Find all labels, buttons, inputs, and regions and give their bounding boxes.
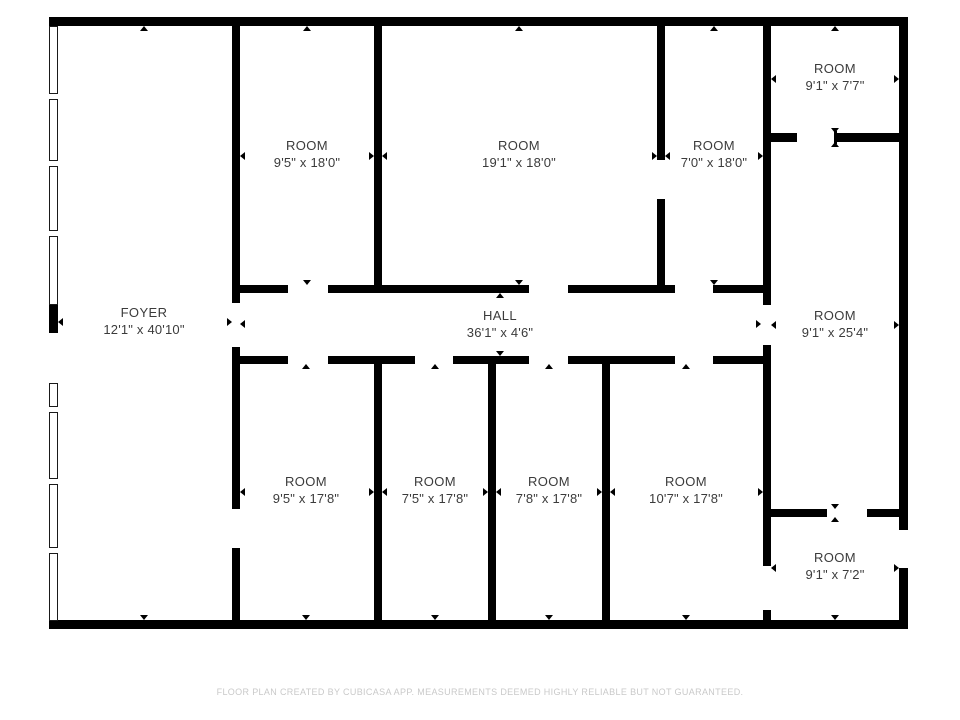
room-label-c: ROOM 7'0" x 18'0" [634,138,794,171]
dimension-marker [302,364,310,369]
room-label-e: ROOM 9'1" x 25'4" [755,308,915,341]
dimension-marker [58,318,63,326]
dimension-marker [710,26,718,31]
hall-bottom-wall-1 [232,356,288,364]
window-mullion [49,406,58,413]
room-dimensions: 9'1" x 25'4" [755,324,915,341]
dimension-marker [240,320,245,328]
hall-top-wall-4 [713,285,771,293]
room-name: ROOM [755,61,915,77]
wall-roomB-roomC-lower [657,199,665,293]
window-mullion [49,160,58,167]
room-label-a: ROOM 9'5" x 18'0" [227,138,387,171]
room-label-d: ROOM 9'1" x 7'7" [755,61,915,94]
hall-top-wall-1 [232,285,288,293]
dimension-marker [496,293,504,298]
room-label-h: ROOM 7'8" x 17'8" [469,474,629,507]
room-dimensions: 19'1" x 18'0" [439,154,599,171]
room-label-j: ROOM 9'1" x 7'2" [755,550,915,583]
room-name: FOYER [64,305,224,321]
wall-roomD-roomE-right [837,133,908,142]
dimension-marker [831,615,839,620]
dimension-marker [302,615,310,620]
dimension-marker [545,615,553,620]
dimension-marker [682,615,690,620]
room-name: ROOM [755,550,915,566]
dimension-marker [515,280,523,285]
wall-right-column-stub [763,610,771,629]
dimension-marker [431,364,439,369]
room-label-hall: HALL 36'1" x 4'6" [420,308,580,341]
floor-plan: FOYER 12'1" x 40'10" ROOM 9'5" x 18'0" R… [0,0,960,720]
room-label-i: ROOM 10'7" x 17'8" [606,474,766,507]
dimension-marker [140,26,148,31]
room-dimensions: 10'7" x 17'8" [606,490,766,507]
room-name: ROOM [755,308,915,324]
hall-bottom-wall-2 [328,356,415,364]
hall-bottom-wall-4 [568,356,675,364]
dimension-marker [431,615,439,620]
room-dimensions: 9'1" x 7'2" [755,566,915,583]
wall-roomE-roomJ-left [763,509,827,517]
room-name: ROOM [227,138,387,154]
room-dimensions: 12'1" x 40'10" [64,321,224,338]
dimension-marker [545,364,553,369]
wall-foyer-lower [232,548,240,629]
dimension-marker [831,26,839,31]
dimension-marker [140,615,148,620]
hall-bottom-wall-3 [453,356,529,364]
dimension-marker [710,280,718,285]
room-name: ROOM [439,138,599,154]
dimension-marker [227,318,232,326]
dimension-marker [496,351,504,356]
dimension-marker [831,142,839,147]
room-label-foyer: FOYER 12'1" x 40'10" [64,305,224,338]
room-dimensions: 7'0" x 18'0" [634,154,794,171]
room-label-b: ROOM 19'1" x 18'0" [439,138,599,171]
room-dimensions: 36'1" x 4'6" [420,324,580,341]
dimension-marker [831,517,839,522]
room-dimensions: 9'1" x 7'7" [755,77,915,94]
dimension-marker [831,128,839,133]
hall-bottom-wall-5 [713,356,771,364]
exterior-wall-top [49,17,908,26]
dimension-marker [831,504,839,509]
window-mullion [49,547,58,554]
room-dimensions: 7'8" x 17'8" [469,490,629,507]
wall-right-column-middle [763,345,771,566]
window-mullion [49,93,58,100]
room-name: ROOM [606,474,766,490]
left-wall-segment [49,305,58,333]
footer-disclaimer: FLOOR PLAN CREATED BY CUBICASA APP. MEAS… [0,687,960,697]
dimension-marker [303,26,311,31]
hall-top-wall-3 [568,285,675,293]
wall-roomE-roomJ-right [867,509,908,517]
hall-top-wall-2 [328,285,529,293]
room-name: ROOM [634,138,794,154]
window-mullion [49,478,58,485]
room-name: HALL [420,308,580,324]
dimension-marker [682,364,690,369]
dimension-marker [515,26,523,31]
exterior-wall-bottom [49,620,908,629]
room-name: ROOM [469,474,629,490]
room-dimensions: 9'5" x 18'0" [227,154,387,171]
dimension-marker [303,280,311,285]
window-mullion [49,230,58,237]
window-left-lower [49,383,58,621]
